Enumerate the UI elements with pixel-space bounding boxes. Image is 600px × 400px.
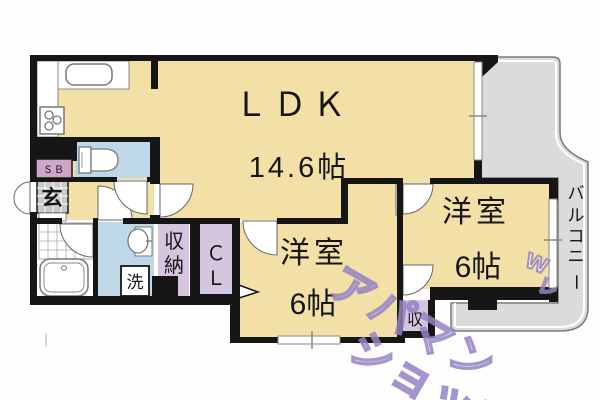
bedroom-right-label: 洋室 bbox=[442, 196, 510, 229]
toilet bbox=[79, 147, 118, 173]
entrance-door-arc bbox=[14, 182, 30, 214]
washbasin-icon bbox=[128, 229, 148, 253]
bedroom-right-size: 6帖 bbox=[455, 251, 502, 284]
bedroom-center-window bbox=[278, 336, 340, 344]
bedroom-center-alcove bbox=[346, 184, 399, 226]
balcony-char: ニ bbox=[568, 247, 585, 266]
toilet-tank-icon bbox=[79, 147, 91, 173]
storage-char: 収 bbox=[164, 230, 184, 253]
floorplan-canvas: ＬＤＫ 14.6帖 洋室 6帖 洋室 6帖 バ ル コ ニ ー 玄 ＳＢ 洗 収… bbox=[0, 0, 600, 400]
balcony-char: コ bbox=[568, 227, 585, 246]
balcony-char: ル bbox=[568, 206, 585, 225]
pillar bbox=[468, 287, 497, 310]
floorplan-svg: ＬＤＫ 14.6帖 洋室 6帖 洋室 6帖 バ ル コ ニ ー 玄 ＳＢ 洗 収… bbox=[0, 0, 600, 400]
toilet-bowl-icon bbox=[91, 149, 118, 171]
balcony-label: バ ル コ ニ ー bbox=[566, 184, 585, 291]
bedroom-center-label: 洋室 bbox=[280, 237, 348, 270]
balcony-char: ー bbox=[566, 274, 585, 291]
cl-char: Ｃ bbox=[206, 243, 226, 265]
storage-char: 納 bbox=[164, 254, 184, 277]
cl-char: Ｌ bbox=[206, 268, 226, 290]
laundry-label: 洗 bbox=[127, 273, 144, 292]
kitchen-sink-icon bbox=[66, 64, 112, 85]
shoe-box-label-front: ＳＢ bbox=[43, 165, 65, 176]
ldk-window bbox=[474, 62, 482, 160]
ldk-size: 14.6帖 bbox=[249, 151, 349, 184]
bedroom-right-window bbox=[549, 199, 557, 288]
entrance-label: 玄 bbox=[42, 186, 63, 210]
balcony-char: バ bbox=[568, 184, 585, 203]
ldk-label: ＬＤＫ bbox=[235, 86, 352, 123]
small-storage-door-arc bbox=[403, 265, 433, 295]
